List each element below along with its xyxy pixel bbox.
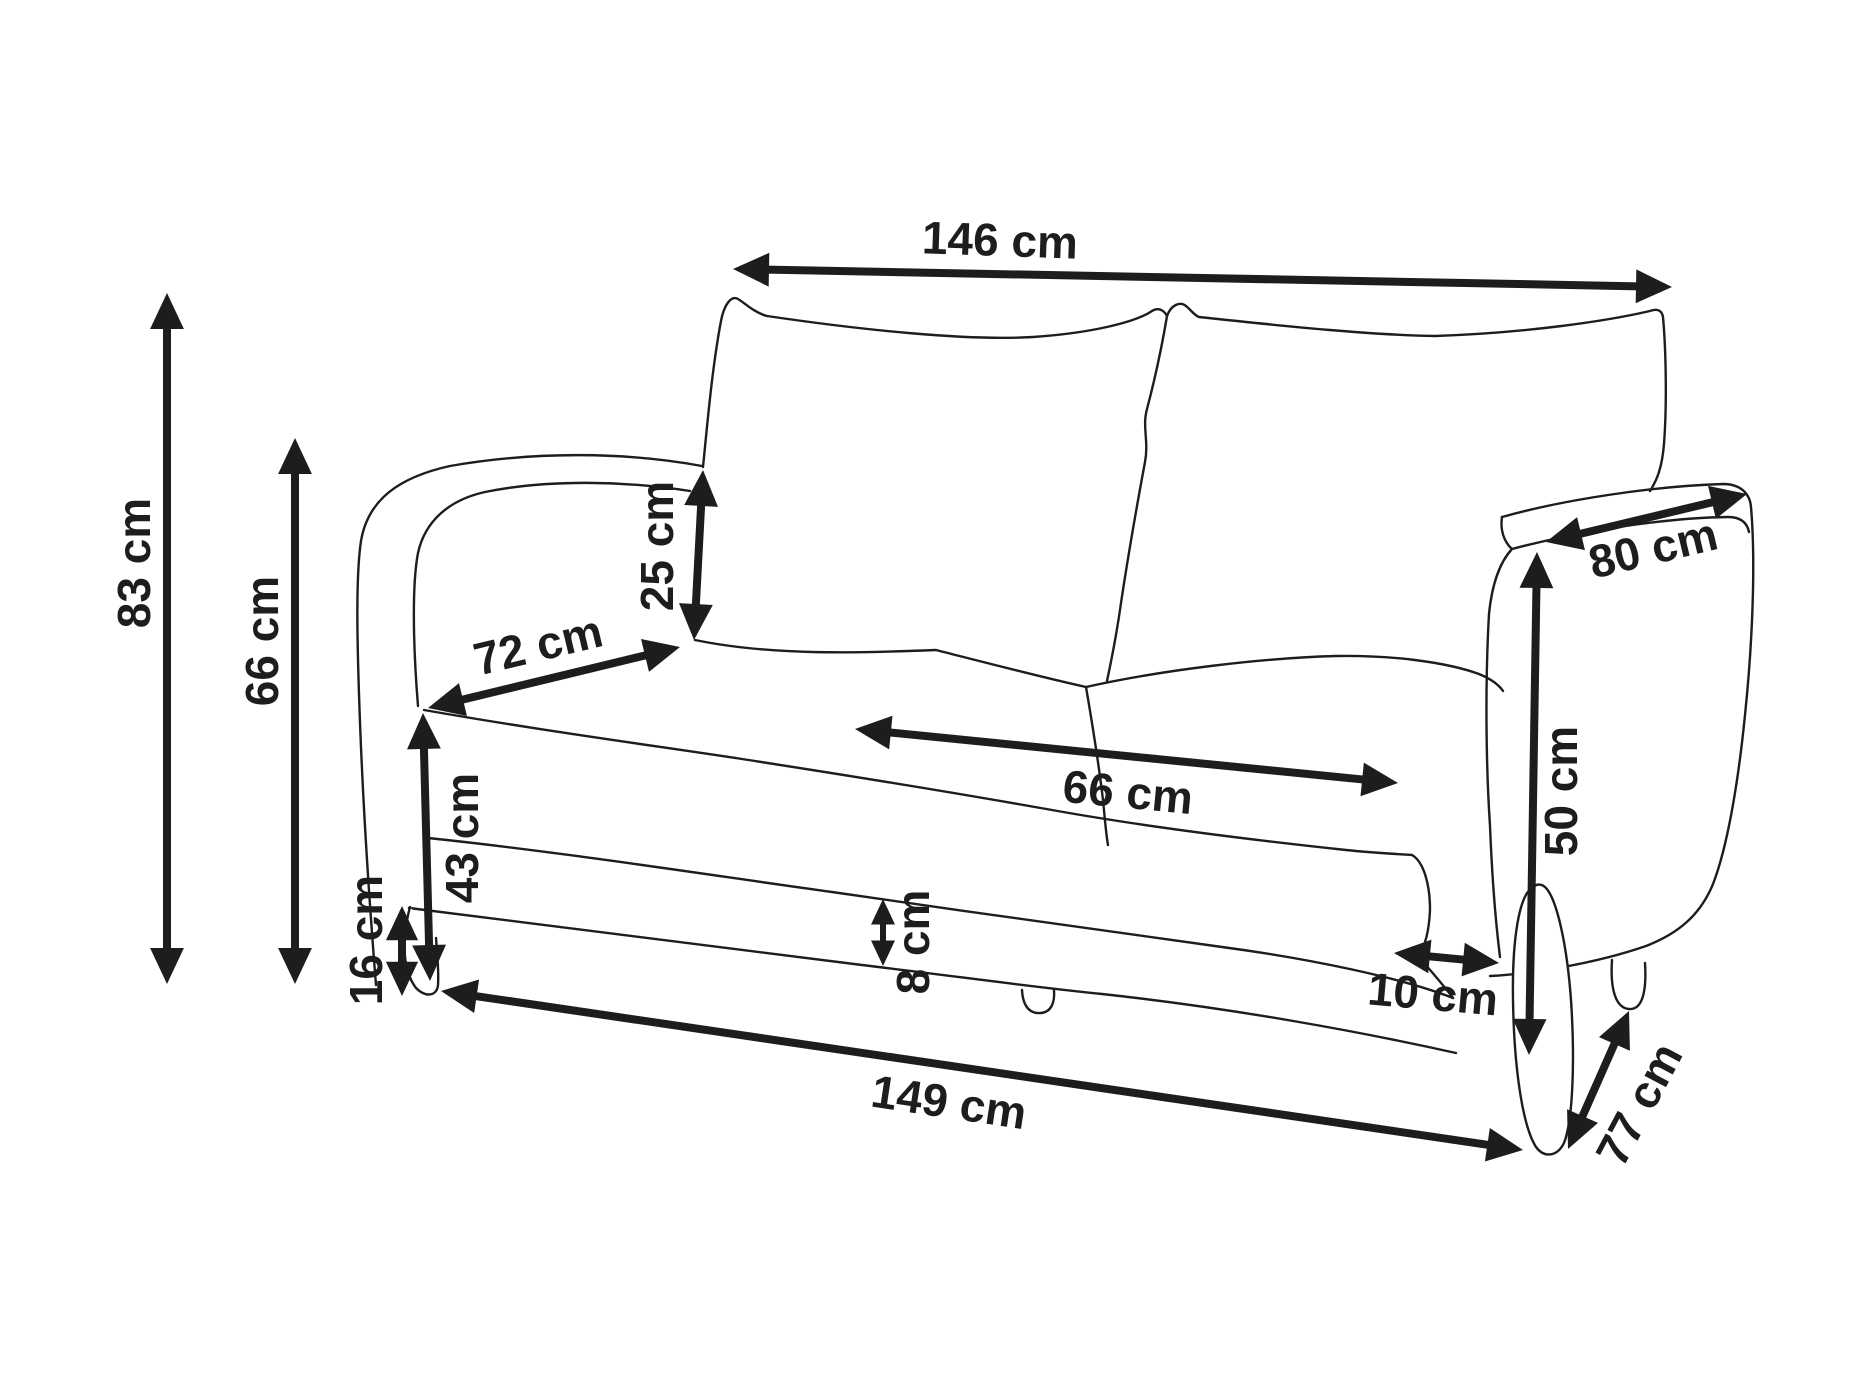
- dimension-label-overall-depth: 77 cm: [1585, 1034, 1692, 1174]
- arrowhead-icon: [733, 253, 769, 287]
- back-cushion-seam: [1107, 316, 1167, 681]
- dimension-armrest-length: 72 cm: [428, 604, 680, 715]
- dimension-line: [760, 270, 1645, 287]
- arrowhead-icon: [1361, 763, 1398, 797]
- dimension-label-arm-side-height: 50 cm: [1535, 726, 1587, 856]
- arrowhead-icon: [150, 948, 184, 984]
- dimension-armrest-thickness: 10 cm: [1366, 940, 1500, 1026]
- dimension-seat-width: 66 cm: [855, 716, 1398, 824]
- dimension-armrest-height: 66 cm: [236, 438, 312, 984]
- dimension-label-armrest-thickness: 10 cm: [1366, 962, 1500, 1025]
- dimension-overall-height: 83 cm: [108, 293, 184, 984]
- dimension-label-seat-height: 43 cm: [436, 773, 488, 903]
- arrowhead-icon: [1636, 269, 1672, 303]
- dimension-line: [424, 740, 430, 954]
- arrowhead-icon: [278, 438, 312, 474]
- dimension-base-height: 8 cm: [871, 890, 939, 995]
- back-cushion-right: [1167, 304, 1666, 491]
- arrowhead-icon: [1520, 552, 1554, 588]
- dimension-overall-width: 149 cm: [441, 979, 1523, 1161]
- dimension-label-armrest-height: 66 cm: [236, 576, 288, 706]
- right-back-leg: [1612, 960, 1646, 1009]
- middle-front-leg: [1022, 990, 1054, 1013]
- dimension-annotations: 146 cm83 cm66 cm25 cm72 cm43 cm16 cm8 cm…: [108, 211, 1747, 1173]
- arrowhead-icon: [1485, 1128, 1523, 1161]
- sofa-dimension-diagram: 146 cm83 cm66 cm25 cm72 cm43 cm16 cm8 cm…: [0, 0, 1852, 1389]
- arrowhead-icon: [407, 713, 441, 749]
- arrowhead-icon: [684, 470, 718, 507]
- back-cushion-left: [703, 298, 1167, 467]
- dimension-line: [695, 497, 701, 613]
- right-armrest-front-edge: [1486, 549, 1512, 957]
- arrowhead-icon: [1546, 517, 1585, 550]
- seat-back-edge-right: [1086, 656, 1503, 691]
- dimension-label-backrest-above-seat: 25 cm: [631, 481, 683, 611]
- dimension-back-width: 146 cm: [733, 211, 1672, 303]
- dimension-label-overall-height: 83 cm: [108, 498, 160, 628]
- arrowhead-icon: [641, 639, 680, 672]
- dimension-backrest-above-seat: 25 cm: [631, 470, 718, 640]
- diagram-canvas: 146 cm83 cm66 cm25 cm72 cm43 cm16 cm8 cm…: [0, 0, 1852, 1389]
- dimension-leg-height: 16 cm: [340, 875, 418, 1005]
- arrowhead-icon: [278, 948, 312, 984]
- dimension-label-back-width: 146 cm: [921, 211, 1079, 268]
- arrowhead-icon: [679, 603, 713, 640]
- dimension-label-leg-height: 16 cm: [340, 875, 392, 1005]
- dimension-label-base-height: 8 cm: [887, 890, 939, 995]
- arrowhead-icon: [150, 293, 184, 329]
- seat-back-edge-left: [695, 640, 1086, 687]
- arrowhead-icon: [855, 716, 892, 750]
- dimension-overall-depth: 77 cm: [1567, 1011, 1692, 1174]
- arrowhead-icon: [1708, 486, 1747, 519]
- arrowhead-icon: [441, 979, 479, 1012]
